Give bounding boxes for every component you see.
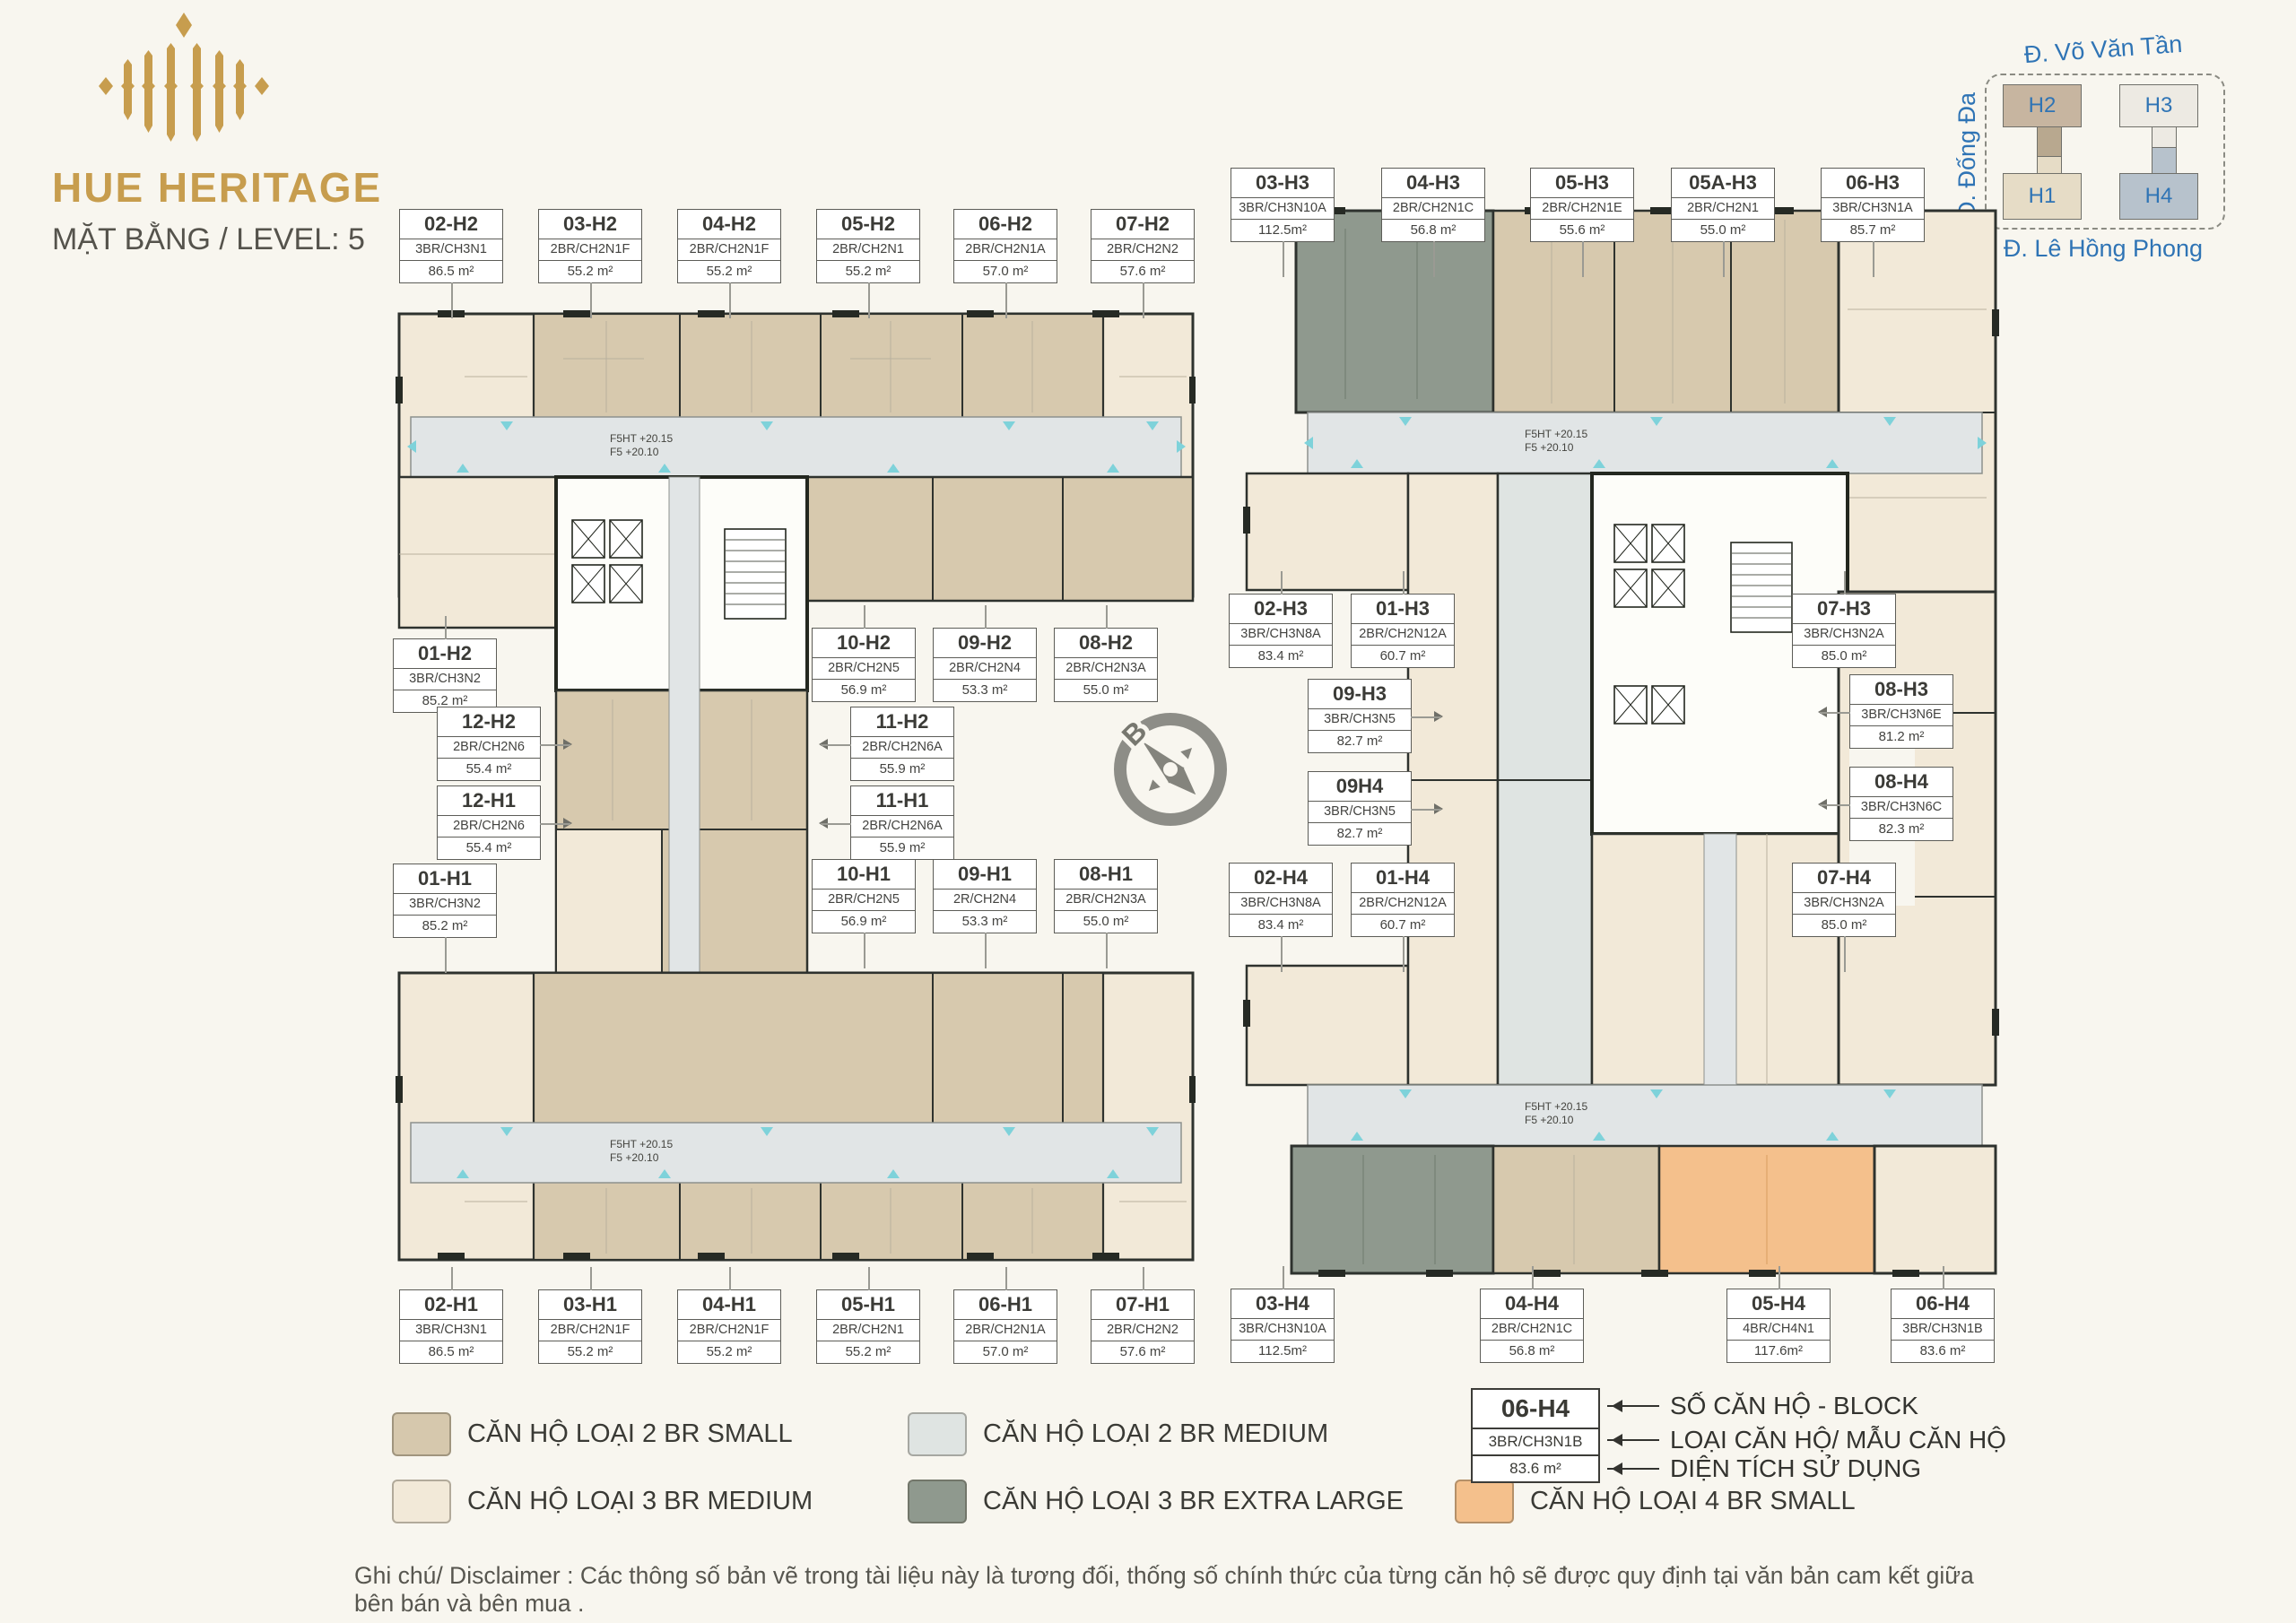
unit-area: 53.3 m² (934, 911, 1036, 933)
unit-area: 83.4 m² (1230, 646, 1332, 667)
unit-label-01-H4: 01-H42BR/CH2N12A60.7 m² (1351, 863, 1455, 937)
key-example-id: 06-H4 (1473, 1390, 1598, 1429)
unit-type: 2BR/CH2N1F (539, 1320, 641, 1341)
unit-label-09-H1: 09-H12R/CH2N453.3 m² (933, 859, 1037, 933)
unit-type: 2BR/CH2N1 (817, 239, 919, 261)
unit-area: 55.2 m² (678, 1341, 780, 1363)
unit-label-10-H1: 10-H12BR/CH2N556.9 m² (812, 859, 916, 933)
unit-area: 55.0 m² (1672, 220, 1774, 241)
unit-label-02-H3: 02-H33BR/CH3N8A83.4 m² (1229, 594, 1333, 668)
unit-id: 06-H4 (1892, 1289, 1994, 1319)
unit-area: 82.7 m² (1309, 731, 1411, 752)
unit-type: 4BR/CH4N1 (1727, 1319, 1830, 1341)
unit-label-09-H2: 09-H22BR/CH2N453.3 m² (933, 628, 1037, 702)
unit-id: 09-H3 (1309, 680, 1411, 709)
unit-label-02-H1: 02-H13BR/CH3N186.5 m² (399, 1289, 503, 1364)
unit-area: 55.2 m² (539, 261, 641, 282)
unit-id: 01-H1 (394, 864, 496, 894)
unit-label-07-H3: 07-H33BR/CH3N2A85.0 m² (1792, 594, 1896, 668)
unit-id: 09H4 (1309, 772, 1411, 802)
unit-type: 2BR/CH2N1E (1531, 198, 1633, 220)
unit-type: 2BR/CH2N3A (1055, 890, 1157, 911)
unit-label-08-H2: 08-H22BR/CH2N3A55.0 m² (1054, 628, 1158, 702)
unit-type: 2BR/CH2N2 (1091, 239, 1194, 261)
unit-area: 60.7 m² (1352, 915, 1454, 936)
unit-id: 02-H3 (1230, 595, 1332, 624)
unit-id: 04-H2 (678, 210, 780, 239)
unit-area: 85.0 m² (1793, 646, 1895, 667)
unit-label-01-H2: 01-H23BR/CH3N285.2 m² (393, 638, 497, 713)
unit-label-10-H2: 10-H22BR/CH2N556.9 m² (812, 628, 916, 702)
unit-label-02-H2: 02-H23BR/CH3N186.5 m² (399, 209, 503, 283)
unit-type: 2BR/CH2N12A (1352, 624, 1454, 646)
unit-type: 3BR/CH3N1B (1892, 1319, 1994, 1341)
unit-area: 56.9 m² (813, 911, 915, 933)
unit-label-01-H3: 01-H32BR/CH2N12A60.7 m² (1351, 594, 1455, 668)
unit-type: 2R/CH2N4 (934, 890, 1036, 911)
unit-id: 03-H4 (1231, 1289, 1334, 1319)
unit-id: 05-H4 (1727, 1289, 1830, 1319)
unit-label-06-H1: 06-H12BR/CH2N1A57.0 m² (953, 1289, 1057, 1364)
unit-id: 10-H1 (813, 860, 915, 890)
unit-label-07-H4: 07-H43BR/CH3N2A85.0 m² (1792, 863, 1896, 937)
unit-area: 112.5m² (1231, 1341, 1334, 1362)
unit-label-05-H4: 05-H44BR/CH4N1117.6m² (1726, 1289, 1831, 1363)
unit-area: 55.9 m² (851, 759, 953, 780)
unit-area: 60.7 m² (1352, 646, 1454, 667)
unit-type: 2BR/CH2N6A (851, 737, 953, 759)
unit-type: 2BR/CH2N6 (438, 816, 540, 838)
unit-label-04-H3: 04-H32BR/CH2N1C56.8 m² (1381, 168, 1485, 242)
unit-area: 57.0 m² (954, 1341, 1057, 1363)
unit-type: 3BR/CH3N5 (1309, 802, 1411, 823)
key-example-type: 3BR/CH3N1B (1473, 1429, 1598, 1456)
unit-label-03-H4: 03-H43BR/CH3N10A112.5m² (1231, 1289, 1335, 1363)
unit-type: 2BR/CH2N6A (851, 816, 953, 838)
unit-id: 03-H3 (1231, 169, 1334, 198)
unit-type: 3BR/CH3N6E (1850, 705, 1952, 726)
unit-area: 82.7 m² (1309, 823, 1411, 845)
unit-type: 3BR/CH3N8A (1230, 893, 1332, 915)
unit-labels-layer: 02-H23BR/CH3N186.5 m²03-H22BR/CH2N1F55.2… (0, 0, 2296, 1623)
unit-type: 2BR/CH2N12A (1352, 893, 1454, 915)
unit-area: 55.9 m² (851, 838, 953, 859)
unit-area: 86.5 m² (400, 1341, 502, 1363)
unit-area: 55.2 m² (539, 1341, 641, 1363)
unit-label-05-H2: 05-H22BR/CH2N155.2 m² (816, 209, 920, 283)
unit-area: 55.0 m² (1055, 680, 1157, 701)
unit-type: 3BR/CH3N10A (1231, 1319, 1334, 1341)
unit-label-04-H1: 04-H12BR/CH2N1F55.2 m² (677, 1289, 781, 1364)
unit-id: 07-H2 (1091, 210, 1194, 239)
unit-id: 06-H2 (954, 210, 1057, 239)
unit-label-07-H1: 07-H12BR/CH2N257.6 m² (1091, 1289, 1195, 1364)
unit-label-05-H1: 05-H12BR/CH2N155.2 m² (816, 1289, 920, 1364)
unit-area: 83.6 m² (1892, 1341, 1994, 1362)
unit-area: 85.0 m² (1793, 915, 1895, 936)
unit-id: 04-H3 (1382, 169, 1484, 198)
unit-id: 06-H3 (1822, 169, 1924, 198)
unit-id: 08-H1 (1055, 860, 1157, 890)
unit-type: 3BR/CH3N2 (394, 894, 496, 916)
unit-id: 03-H1 (539, 1290, 641, 1320)
unit-id: 07-H1 (1091, 1290, 1194, 1320)
unit-type: 2BR/CH2N1 (1672, 198, 1774, 220)
unit-id: 05-H1 (817, 1290, 919, 1320)
unit-label-04-H4: 04-H42BR/CH2N1C56.8 m² (1480, 1289, 1584, 1363)
unit-id: 02-H4 (1230, 864, 1332, 893)
key-example-area: 83.6 m² (1473, 1456, 1598, 1481)
unit-type: 2BR/CH2N1F (678, 239, 780, 261)
floorplan-page: HUE HERITAGE MẶT BẰNG / LEVEL: 5 Đ. Võ V… (0, 0, 2296, 1623)
unit-type: 3BR/CH3N6C (1850, 797, 1952, 819)
unit-label-04-H2: 04-H22BR/CH2N1F55.2 m² (677, 209, 781, 283)
unit-type: 2BR/CH2N6 (438, 737, 540, 759)
unit-id: 05-H2 (817, 210, 919, 239)
unit-label-03-H2: 03-H22BR/CH2N1F55.2 m² (538, 209, 642, 283)
unit-id: 05-H3 (1531, 169, 1633, 198)
unit-id: 11-H1 (851, 786, 953, 816)
unit-id: 03-H2 (539, 210, 641, 239)
unit-area: 85.2 m² (394, 916, 496, 937)
unit-label-08-H1: 08-H12BR/CH2N3A55.0 m² (1054, 859, 1158, 933)
unit-label-08-H4: 08-H43BR/CH3N6C82.3 m² (1849, 767, 1953, 841)
unit-type: 2BR/CH2N5 (813, 890, 915, 911)
unit-type: 3BR/CH3N5 (1309, 709, 1411, 731)
unit-id: 12-H1 (438, 786, 540, 816)
unit-type: 2BR/CH2N1A (954, 1320, 1057, 1341)
unit-label-03-H3: 03-H33BR/CH3N10A112.5m² (1231, 168, 1335, 242)
unit-type: 3BR/CH3N10A (1231, 198, 1334, 220)
unit-area: 56.9 m² (813, 680, 915, 701)
unit-id: 07-H3 (1793, 595, 1895, 624)
unit-type: 2BR/CH2N1C (1481, 1319, 1583, 1341)
unit-area: 86.5 m² (400, 261, 502, 282)
unit-id: 07-H4 (1793, 864, 1895, 893)
unit-area: 81.2 m² (1850, 726, 1952, 748)
unit-label-06-H2: 06-H22BR/CH2N1A57.0 m² (953, 209, 1057, 283)
unit-area: 55.4 m² (438, 759, 540, 780)
unit-type: 2BR/CH2N1F (678, 1320, 780, 1341)
unit-type: 2BR/CH2N1C (1382, 198, 1484, 220)
unit-label-06-H4: 06-H43BR/CH3N1B83.6 m² (1891, 1289, 1995, 1363)
unit-type: 2BR/CH2N1 (817, 1320, 919, 1341)
unit-area: 56.8 m² (1481, 1341, 1583, 1362)
unit-label-07-H2: 07-H22BR/CH2N257.6 m² (1091, 209, 1195, 283)
unit-type: 3BR/CH3N2 (394, 669, 496, 690)
unit-id: 02-H1 (400, 1290, 502, 1320)
unit-area: 57.6 m² (1091, 261, 1194, 282)
unit-type: 2BR/CH2N3A (1055, 658, 1157, 680)
unit-label-05A-H3: 05A-H32BR/CH2N155.0 m² (1671, 168, 1775, 242)
unit-id: 08-H3 (1850, 675, 1952, 705)
unit-id: 01-H2 (394, 639, 496, 669)
unit-id: 02-H2 (400, 210, 502, 239)
unit-type: 3BR/CH3N1 (400, 239, 502, 261)
unit-id: 01-H4 (1352, 864, 1454, 893)
unit-type: 2BR/CH2N2 (1091, 1320, 1194, 1341)
unit-label-08-H3: 08-H33BR/CH3N6E81.2 m² (1849, 674, 1953, 749)
unit-id: 04-H4 (1481, 1289, 1583, 1319)
unit-area: 57.6 m² (1091, 1341, 1194, 1363)
unit-type: 3BR/CH3N2A (1793, 624, 1895, 646)
unit-type: 2BR/CH2N5 (813, 658, 915, 680)
unit-area: 112.5m² (1231, 220, 1334, 241)
unit-area: 55.0 m² (1055, 911, 1157, 933)
unit-id: 08-H2 (1055, 629, 1157, 658)
unit-area: 53.3 m² (934, 680, 1036, 701)
unit-type: 3BR/CH3N8A (1230, 624, 1332, 646)
unit-type: 2BR/CH2N4 (934, 658, 1036, 680)
unit-id: 10-H2 (813, 629, 915, 658)
unit-area: 83.4 m² (1230, 915, 1332, 936)
unit-id: 05A-H3 (1672, 169, 1774, 198)
unit-type: 2BR/CH2N1F (539, 239, 641, 261)
unit-area: 55.6 m² (1531, 220, 1633, 241)
unit-area: 57.0 m² (954, 261, 1057, 282)
unit-label-11-H1: 11-H12BR/CH2N6A55.9 m² (850, 785, 954, 860)
unit-label-06-H3: 06-H33BR/CH3N1A85.7 m² (1821, 168, 1925, 242)
unit-label-12-H2: 12-H22BR/CH2N655.4 m² (437, 707, 541, 781)
unit-area: 82.3 m² (1850, 819, 1952, 840)
unit-area: 55.2 m² (678, 261, 780, 282)
key-example-label: 06-H4 3BR/CH3N1B 83.6 m² (1471, 1388, 1600, 1483)
unit-id: 01-H3 (1352, 595, 1454, 624)
unit-label-01-H1: 01-H13BR/CH3N285.2 m² (393, 864, 497, 938)
unit-label-12-H1: 12-H12BR/CH2N655.4 m² (437, 785, 541, 860)
unit-area: 55.4 m² (438, 838, 540, 859)
unit-id: 09-H2 (934, 629, 1036, 658)
unit-id: 08-H4 (1850, 768, 1952, 797)
unit-id: 11-H2 (851, 707, 953, 737)
unit-area: 55.2 m² (817, 261, 919, 282)
unit-type: 2BR/CH2N1A (954, 239, 1057, 261)
unit-id: 04-H1 (678, 1290, 780, 1320)
unit-label-05-H3: 05-H32BR/CH2N1E55.6 m² (1530, 168, 1634, 242)
unit-area: 56.8 m² (1382, 220, 1484, 241)
unit-label-09H4: 09H43BR/CH3N582.7 m² (1308, 771, 1412, 846)
unit-label-11-H2: 11-H22BR/CH2N6A55.9 m² (850, 707, 954, 781)
unit-type: 3BR/CH3N1 (400, 1320, 502, 1341)
unit-area: 55.2 m² (817, 1341, 919, 1363)
unit-label-03-H1: 03-H12BR/CH2N1F55.2 m² (538, 1289, 642, 1364)
unit-id: 12-H2 (438, 707, 540, 737)
unit-label-02-H4: 02-H43BR/CH3N8A83.4 m² (1229, 863, 1333, 937)
unit-id: 09-H1 (934, 860, 1036, 890)
unit-type: 3BR/CH3N1A (1822, 198, 1924, 220)
unit-type: 3BR/CH3N2A (1793, 893, 1895, 915)
unit-area: 117.6m² (1727, 1341, 1830, 1362)
unit-id: 06-H1 (954, 1290, 1057, 1320)
unit-area: 85.7 m² (1822, 220, 1924, 241)
unit-label-09-H3: 09-H33BR/CH3N582.7 m² (1308, 679, 1412, 753)
